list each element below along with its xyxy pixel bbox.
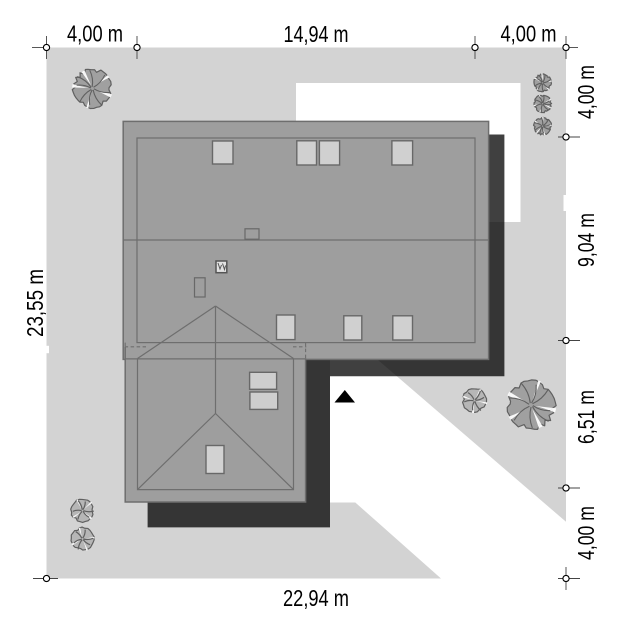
svg-text:4,00 m: 4,00 m	[573, 65, 599, 119]
svg-text:22,94 m: 22,94 m	[283, 585, 349, 611]
svg-text:4,00 m: 4,00 m	[67, 21, 123, 47]
svg-text:9,04 m: 9,04 m	[573, 213, 599, 267]
svg-text:6,51 m: 6,51 m	[573, 390, 599, 444]
svg-text:14,94 m: 14,94 m	[284, 21, 349, 47]
svg-text:23,55 m: 23,55 m	[22, 269, 48, 337]
svg-text:4,00 m: 4,00 m	[573, 506, 599, 560]
svg-text:4,00 m: 4,00 m	[501, 21, 557, 47]
